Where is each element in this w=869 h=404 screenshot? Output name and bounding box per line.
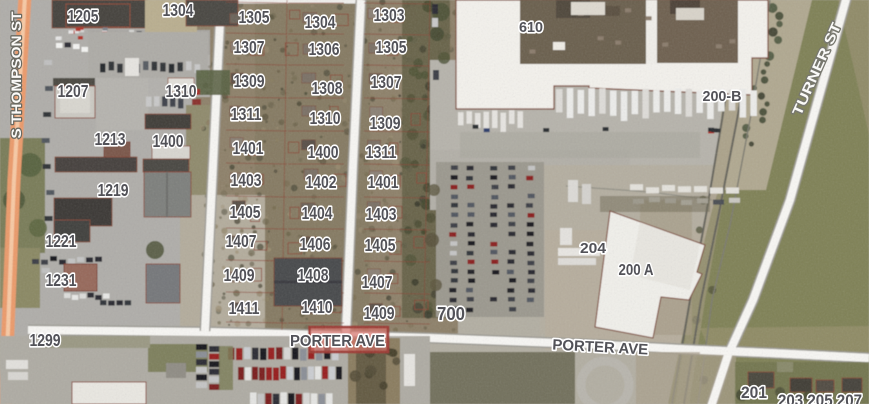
svg-text:1400: 1400 [308, 142, 339, 162]
svg-text:1407: 1407 [226, 231, 257, 251]
svg-text:1310: 1310 [310, 108, 341, 128]
svg-text:1410: 1410 [302, 297, 333, 317]
svg-text:1221: 1221 [46, 231, 77, 251]
svg-text:1219: 1219 [98, 180, 129, 200]
svg-text:1408: 1408 [298, 265, 329, 285]
svg-text:1310: 1310 [166, 81, 197, 101]
svg-text:203 205 207: 203 205 207 [778, 392, 862, 404]
svg-text:1308: 1308 [312, 78, 343, 98]
svg-text:1307: 1307 [371, 72, 402, 92]
svg-text:1213: 1213 [95, 129, 126, 149]
svg-text:1309: 1309 [370, 113, 401, 133]
svg-text:700: 700 [437, 304, 465, 324]
svg-text:204: 204 [580, 240, 607, 257]
svg-text:1411: 1411 [229, 298, 260, 318]
svg-text:1404: 1404 [302, 203, 333, 223]
svg-text:1405: 1405 [365, 235, 396, 255]
svg-text:1402: 1402 [306, 172, 337, 192]
svg-text:1311: 1311 [231, 104, 262, 124]
svg-text:1407: 1407 [362, 272, 393, 292]
svg-text:1305: 1305 [239, 7, 270, 27]
svg-text:1307: 1307 [234, 37, 265, 57]
svg-text:1303: 1303 [374, 5, 405, 25]
svg-text:610: 610 [519, 19, 543, 36]
svg-text:S THOMPSON ST: S THOMPSON ST [9, 11, 24, 139]
svg-text:1401: 1401 [233, 138, 264, 158]
svg-text:200-B: 200-B [703, 88, 742, 105]
svg-text:200 A: 200 A [619, 262, 654, 279]
svg-text:1401: 1401 [368, 172, 399, 192]
svg-text:1309: 1309 [234, 71, 265, 91]
svg-text:1311: 1311 [366, 142, 397, 162]
svg-text:1207: 1207 [58, 81, 89, 101]
svg-text:201: 201 [741, 383, 767, 402]
svg-text:1299: 1299 [30, 330, 61, 350]
svg-text:1304: 1304 [163, 0, 194, 20]
svg-text:1403: 1403 [366, 204, 397, 224]
svg-text:PORTER AVE: PORTER AVE [290, 333, 385, 350]
svg-text:1304: 1304 [305, 12, 336, 32]
svg-text:1305: 1305 [376, 37, 407, 57]
svg-text:1405: 1405 [230, 202, 261, 222]
svg-text:1409: 1409 [364, 303, 395, 323]
svg-text:1406: 1406 [300, 234, 331, 254]
svg-text:1409: 1409 [224, 265, 255, 285]
svg-text:1306: 1306 [309, 39, 340, 59]
svg-text:1403: 1403 [231, 170, 262, 190]
svg-text:1400: 1400 [153, 131, 184, 151]
svg-text:1231: 1231 [46, 270, 77, 290]
svg-text:1205: 1205 [68, 6, 99, 26]
